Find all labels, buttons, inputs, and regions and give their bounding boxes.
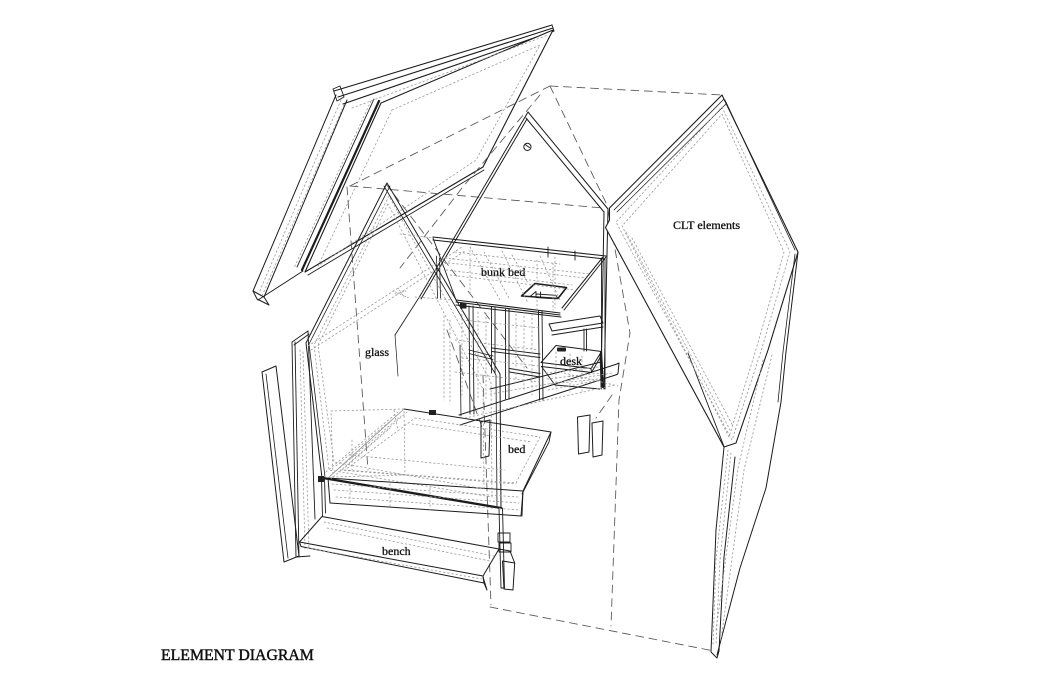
svg-text:CLT elements: CLT elements [673,218,740,232]
svg-text:desk: desk [560,354,582,368]
svg-text:bed: bed [508,442,525,456]
svg-text:glass: glass [365,345,389,359]
svg-text:bench: bench [382,544,411,558]
svg-text:ELEMENT DIAGRAM: ELEMENT DIAGRAM [161,647,314,664]
